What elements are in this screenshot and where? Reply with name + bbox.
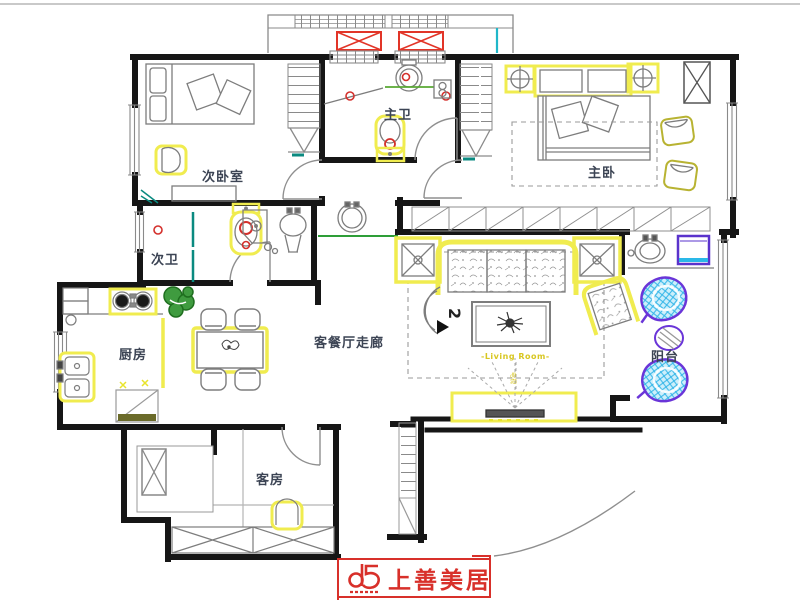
fridge	[116, 380, 158, 422]
doors	[230, 118, 635, 556]
dining-set	[193, 309, 267, 390]
hanging-chair	[637, 276, 688, 323]
balcony	[628, 235, 714, 405]
sink	[57, 353, 94, 401]
logo-text: 上善美居	[388, 567, 492, 594]
marker-2: 2	[445, 308, 464, 319]
ceiling-light-icon	[506, 66, 534, 92]
side-table	[574, 238, 620, 282]
utility-basin	[628, 235, 665, 263]
secondary-bath	[154, 204, 306, 282]
chair	[663, 160, 697, 191]
label-master-bath: 主卫	[384, 107, 412, 123]
top-window-band-right	[392, 15, 448, 28]
sofa	[438, 242, 576, 295]
column-icon	[684, 62, 710, 103]
bed	[538, 96, 650, 160]
ac-unit-icon	[399, 32, 443, 50]
label-balcony: 阳台	[651, 349, 679, 365]
tv-note: 电视	[509, 372, 517, 384]
south-closet	[412, 207, 710, 231]
washing-machine	[678, 236, 709, 264]
wardrobe	[288, 64, 320, 155]
label-guest-room: 客房	[256, 472, 284, 488]
chair	[156, 146, 186, 174]
living-room-note: -Living Room-	[481, 352, 550, 361]
pedestal-basin	[280, 208, 306, 252]
label-secondary-bath: 次卫	[151, 252, 179, 268]
entry-cabinet	[399, 423, 416, 534]
tv-stand	[452, 358, 576, 421]
hall-basin	[318, 202, 398, 236]
shaft	[137, 446, 213, 512]
chair	[272, 499, 302, 529]
toilet	[231, 204, 261, 254]
ac-platform	[268, 15, 513, 53]
coffee-table	[472, 302, 550, 346]
chair	[660, 116, 694, 146]
label-secondary-bedroom: 次卧室	[202, 169, 244, 185]
direction-marker-icon	[437, 320, 449, 334]
cabinet	[172, 186, 236, 201]
floorplan-page: -Living Room- 电视 2 次卧室 次卫 主卫 主卧 厨房 客餐厅走廊…	[0, 0, 800, 600]
living-room	[396, 238, 638, 421]
ac-unit-icon	[337, 32, 381, 50]
label-kitchen: 厨房	[119, 347, 147, 363]
plant-icon	[164, 287, 194, 317]
brand-logo: 上善美居	[338, 556, 492, 600]
stove	[110, 289, 156, 314]
armchair	[582, 276, 639, 335]
side-table	[396, 238, 440, 282]
bed-platform	[172, 527, 334, 553]
floorplan-drawing: -Living Room- 电视 2 次卧室 次卫 主卫 主卧 厨房 客餐厅走廊…	[0, 0, 800, 600]
wardrobe	[460, 64, 492, 159]
label-master-bedroom: 主卧	[588, 165, 616, 181]
top-window-band-left	[295, 15, 385, 28]
headboard	[535, 66, 631, 96]
balcony-table	[655, 326, 683, 350]
light-icon	[154, 226, 162, 234]
label-hall: 客餐厅走廊	[314, 335, 384, 351]
